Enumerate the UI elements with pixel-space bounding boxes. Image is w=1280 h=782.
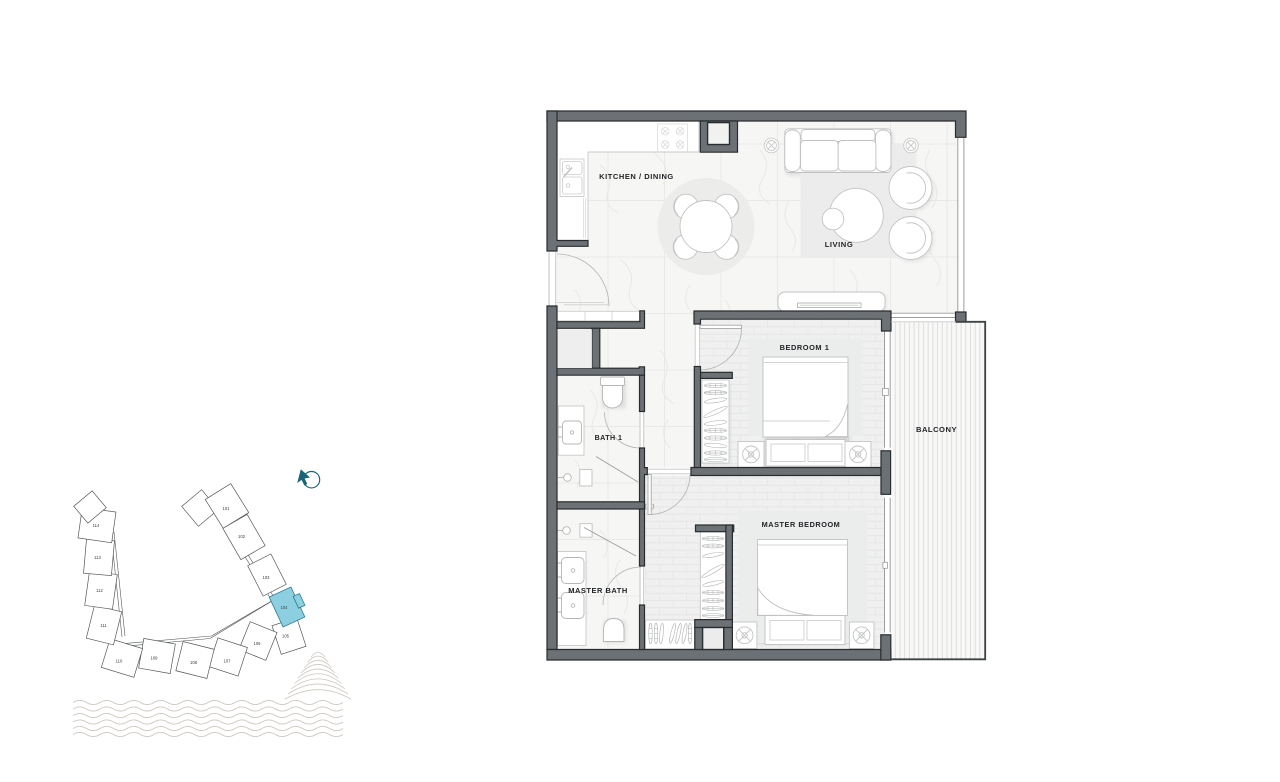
svg-text:MASTER BEDROOM: MASTER BEDROOM [762,520,841,529]
svg-text:103: 103 [263,575,271,580]
svg-text:BALCONY: BALCONY [916,425,957,434]
svg-text:101: 101 [223,506,231,511]
svg-text:107: 107 [224,659,232,664]
svg-text:BEDROOM 1: BEDROOM 1 [780,343,830,352]
svg-text:113: 113 [94,555,101,560]
svg-text:KITCHEN / DINING: KITCHEN / DINING [599,172,674,181]
svg-text:105: 105 [282,634,290,639]
svg-text:108: 108 [190,660,198,665]
svg-text:MASTER BATH: MASTER BATH [568,586,628,595]
svg-text:111: 111 [100,623,107,628]
svg-text:109: 109 [151,656,159,661]
svg-text:114: 114 [93,523,100,528]
svg-text:112: 112 [96,588,103,593]
svg-text:106: 106 [254,641,262,646]
svg-text:102: 102 [238,534,246,539]
svg-text:110: 110 [116,659,123,664]
svg-text:BATH 1: BATH 1 [595,434,623,442]
svg-text:LIVING: LIVING [825,240,854,249]
svg-text:104: 104 [281,605,289,610]
